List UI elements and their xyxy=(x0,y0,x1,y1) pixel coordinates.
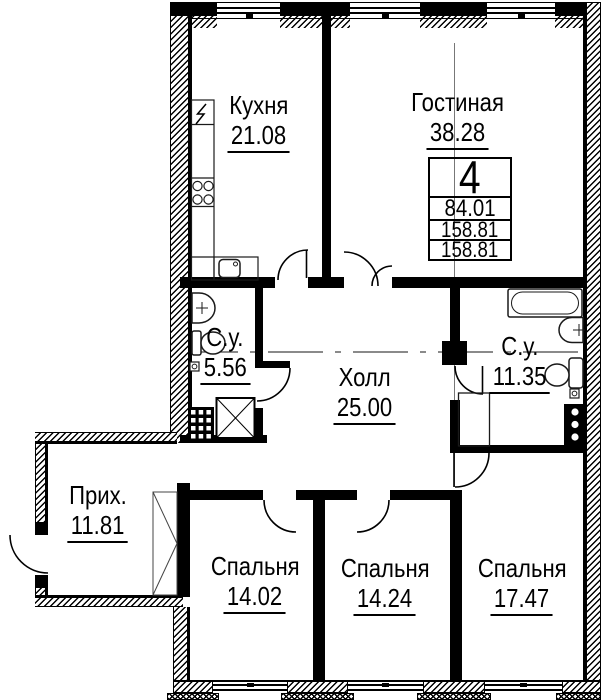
living-door-arc-small xyxy=(372,266,392,286)
cabinet-icon xyxy=(459,393,490,446)
vent-shaft-icon xyxy=(188,407,214,441)
room-area: 11.81 xyxy=(68,512,128,542)
room-name: Холл xyxy=(339,364,391,391)
room-area: 21.08 xyxy=(228,122,290,152)
room-name: С.у. xyxy=(501,333,538,360)
room-name: Прих. xyxy=(69,482,127,509)
room-label-bath-large: С.у. 11.35 xyxy=(460,333,580,394)
apartment-info-table: 4 84.01 158.81 158.81 xyxy=(428,157,512,261)
room-label-bedroom-3: Спальня 17.47 xyxy=(462,555,582,616)
stove-icon xyxy=(193,181,213,204)
room-area: 14.02 xyxy=(224,583,286,613)
room-name: Спальня xyxy=(211,553,300,580)
kitchen-door-arc xyxy=(278,250,308,280)
area-row: 158.81 xyxy=(430,239,510,259)
room-area: 14.24 xyxy=(354,585,416,615)
room-name: Гостиная xyxy=(412,89,505,116)
floor-plan: Кухня 21.08 Гостиная 38.28 С.у. 5.56 Хол… xyxy=(0,0,601,700)
apartment-number: 4 xyxy=(430,159,510,196)
room-area: 11.35 xyxy=(490,363,550,393)
duct-shaft-icon xyxy=(217,398,255,438)
bathtub-icon xyxy=(508,289,582,317)
room-label-bedroom-2: Спальня 14.24 xyxy=(325,555,445,616)
bedroom-2-door-arc xyxy=(357,500,389,532)
room-label-entry: Прих. 11.81 xyxy=(38,482,158,543)
room-area: 25.00 xyxy=(334,394,396,424)
room-label-bedroom-1: Спальня 14.02 xyxy=(195,553,315,614)
sink-icon xyxy=(192,293,215,323)
room-name: Кухня xyxy=(229,92,288,119)
area-row: 84.01 xyxy=(430,196,510,219)
room-area: 17.47 xyxy=(491,585,553,615)
room-name: Спальня xyxy=(341,555,430,582)
room-name: Спальня xyxy=(478,555,567,582)
bedroom-1-door-arc xyxy=(264,500,296,532)
room-label-living: Гостиная 38.28 xyxy=(398,89,518,150)
bedroom-3-door-arc xyxy=(455,453,489,487)
room-name: С.у. xyxy=(206,324,243,351)
room-label-hall: Холл 25.00 xyxy=(305,364,425,425)
kitchen-sink-icon xyxy=(219,260,240,278)
room-label-bath-small: С.у. 5.56 xyxy=(165,324,285,385)
room-area: 38.28 xyxy=(427,119,489,149)
room-area: 5.56 xyxy=(200,354,250,384)
area-row: 158.81 xyxy=(430,219,510,239)
room-label-kitchen: Кухня 21.08 xyxy=(199,92,319,153)
vent-shaft-icon xyxy=(564,404,586,445)
